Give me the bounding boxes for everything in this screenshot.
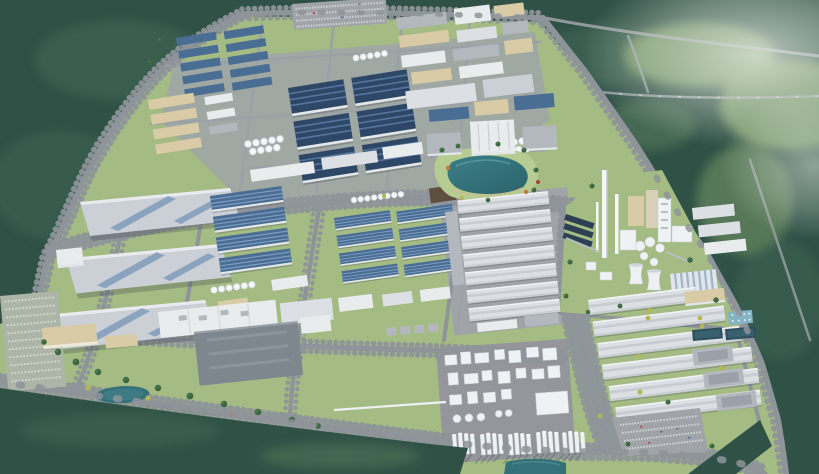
dark-grey-plant — [194, 321, 303, 386]
silo — [650, 258, 658, 266]
campus-east-wing — [522, 125, 557, 149]
industrial-park-aerial-render — [0, 0, 819, 474]
secondary-stack — [615, 194, 619, 254]
industrial-park-render — [0, 0, 819, 474]
chimney-shade — [606, 170, 607, 258]
plant-buff-tower — [628, 196, 644, 226]
cooling-tower — [629, 263, 643, 284]
silo — [645, 237, 655, 247]
silo — [635, 241, 645, 251]
thin-stack — [596, 202, 599, 252]
plant-main-hall — [535, 391, 568, 415]
silo — [656, 244, 665, 253]
west-office — [56, 247, 84, 268]
retention-pond — [504, 459, 566, 474]
silo — [640, 252, 648, 260]
south-small-building — [300, 315, 332, 334]
plant-buff-tower-2 — [646, 190, 658, 228]
cooling-tower — [647, 269, 661, 290]
